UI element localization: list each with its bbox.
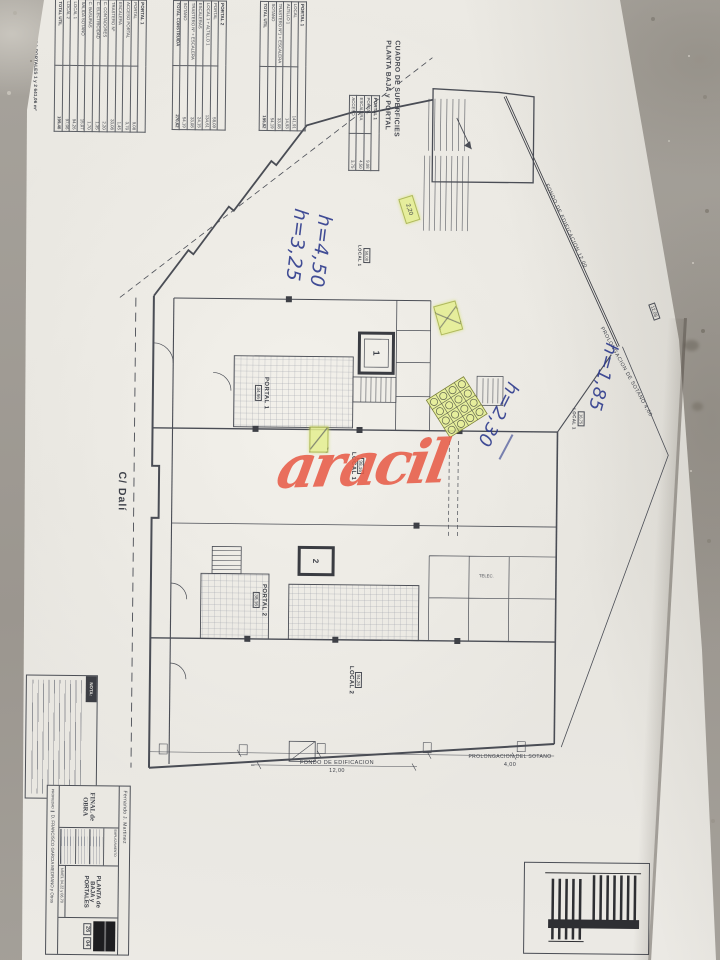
propiedad-label: PROPIEDAD — [51, 789, 55, 812]
portal1-surface-table: PORTAL 1 LOCAL141,91ALTILLO 114,93TRASTE… — [259, 1, 307, 131]
local1-upper-label: 58,08 LOCAL 1 — [357, 245, 370, 267]
field-text — [75, 829, 88, 864]
prolongacion-sotano-dim-value: 4,00 — [495, 762, 525, 768]
site-sketch-drawing — [525, 863, 649, 954]
owner-row: PROPIEDAD D. FRANCISCO GARCIA MEDRANO y … — [46, 786, 60, 954]
nivel-cell: NIVEL 04,22 y 06,70 — [58, 866, 66, 917]
site-location-sketch — [523, 862, 650, 955]
nota-text-lines — [30, 680, 82, 795]
concrete-speckles — [0, 0, 2, 2]
elevator-2-label: 2 — [303, 547, 329, 574]
elevator-1-label: 1 — [363, 335, 389, 371]
concrete-smudge — [692, 402, 703, 411]
portal2-label: PORTAL 2 38,16 — [253, 584, 267, 616]
aracil-watermark: aracil — [272, 427, 452, 503]
fondo-edificacion-dim-value: 12,00 — [317, 768, 357, 774]
photo-of-floor-plan: CUADRO DE SUPERFICIES PLANTA BAJA y PORT… — [0, 0, 720, 960]
nivel-label: NIVEL — [60, 868, 64, 879]
concrete-smudge — [684, 340, 699, 351]
drawing-title: PLANTA de BAJA y PORTALES — [65, 866, 118, 918]
firm-logo — [93, 921, 115, 951]
architect-name: Fernando J. Martinez — [117, 786, 130, 954]
nota-box: NOTA: — [25, 675, 98, 800]
prolongacion-sotano-dim-label: PROLONGACION DEL SOTANO — [440, 754, 580, 760]
title-block-fields: EMPLAZAMIENTO — [59, 828, 118, 867]
field-text — [60, 829, 73, 864]
sheet-number-2: 04 — [83, 937, 91, 949]
portal2-surface-table: PORTAL 2 PORTAL58,09LOCAL 1 + ALTILLO 11… — [172, 0, 227, 131]
nota-label: NOTA: — [86, 676, 97, 702]
field-text — [89, 829, 102, 864]
telec-room-label: TELEC. — [479, 573, 494, 578]
local2-label: 94,26 LOCAL 2 — [348, 666, 362, 695]
sheet-number: 26 — [83, 923, 91, 935]
nivel-value: 04,22 y 06,70 — [60, 880, 64, 903]
field-label: EMPLAZAMIENTO — [103, 828, 118, 865]
blueprint-paper: CUADRO DE SUPERFICIES PLANTA BAJA y PORT… — [0, 0, 720, 960]
document-type: FINAL de OBRA — [59, 786, 118, 829]
portal1-label: PORTAL 1 34,56 — [255, 377, 269, 409]
street-name-label: C/ Dalí — [116, 471, 128, 511]
schedule-title: CUADRO DE SUPERFICIES — [393, 40, 401, 137]
title-block: Fernando J. Martinez FINAL de OBRA EMPLA… — [45, 785, 131, 956]
detail-surface-table: PORTAL 1 PORTAL9,08ACCESO PORTAL3,70ESCA… — [54, 0, 147, 133]
local1-notch-label: 16,75 LOCAL 1 — [572, 408, 585, 430]
owner-name: D. FRANCISCO GARCIA MEDRANO y Otros — [50, 815, 56, 903]
fondo-edificacion-dim-label: FONDO DE EDIFICACION — [237, 760, 437, 766]
firm-logo-cell: 26 04 — [58, 918, 117, 955]
schedule-subtitle: PLANTA BAJA y PORTAL — [384, 40, 392, 130]
mini-surface-table: PORTAL 1 PORTAL9,08ESCALERA4,50ACCESO3,7… — [348, 95, 380, 171]
drawing-title-cell: PLANTA de BAJA y PORTALES NIVEL 04,22 y … — [58, 866, 118, 919]
